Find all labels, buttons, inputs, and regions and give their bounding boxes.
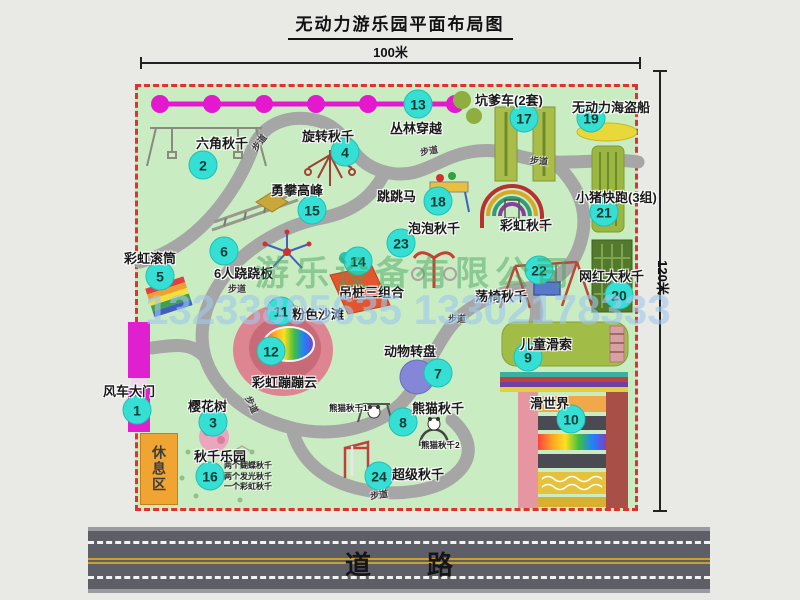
attraction-label-4: 旋转秋千 xyxy=(302,126,354,145)
attraction-label-9: 儿童滑索 xyxy=(520,334,572,353)
marker-16: 16 xyxy=(196,462,225,491)
attraction-label-11: 粉色沙滩 xyxy=(292,304,344,323)
attraction-label-7: 动物转盘 xyxy=(384,341,436,360)
page-title-wrap: 无动力游乐园平面布局图 xyxy=(0,10,800,40)
extra-label-0: 彩虹秋千 xyxy=(500,215,552,234)
attraction-label-2: 六角秋千 xyxy=(196,133,248,152)
marker-6: 6 xyxy=(210,237,239,266)
attraction-label-15: 勇攀高峰 xyxy=(271,180,323,199)
page-title: 无动力游乐园平面布局图 xyxy=(288,10,513,40)
attraction-label-8: 熊猫秋千 xyxy=(412,398,464,417)
attraction-label-19: 无动力海盗船 xyxy=(572,97,650,116)
swing-detail-line: 两个蝴蝶秋千 xyxy=(224,461,272,472)
tick-left xyxy=(140,57,142,69)
rest-area: 休息区 xyxy=(140,433,178,505)
attraction-label-22: 荡椅秋千 xyxy=(475,286,527,305)
attraction-label-20: 网红大秋千 xyxy=(579,266,644,285)
marker-12: 12 xyxy=(257,337,286,366)
road-label: 道路 xyxy=(88,545,710,582)
marker-18: 18 xyxy=(424,187,453,216)
attraction-label-13: 丛林穿越 xyxy=(390,118,442,137)
tick-right xyxy=(639,57,641,69)
marker-2: 2 xyxy=(189,151,218,180)
attraction-label-5: 彩虹滚筒 xyxy=(124,248,176,267)
attraction-label-21: 小猪快跑(3组) xyxy=(576,187,657,206)
marker-7: 7 xyxy=(424,359,453,388)
dimension-width-line xyxy=(140,62,641,64)
marker-15: 15 xyxy=(298,196,327,225)
dimension-width-label: 100米 xyxy=(140,42,641,61)
marker-14: 14 xyxy=(344,247,373,276)
attraction-label-24: 超级秋千 xyxy=(392,464,444,483)
extra-label-1: 熊猫秋千1 xyxy=(329,402,368,414)
walkway-label-3: 步道 xyxy=(228,282,246,295)
road: 道路 xyxy=(88,527,710,593)
swing-detail-line: 两个发光秋千 xyxy=(224,472,272,483)
extra-label-2: 熊猫秋千2 xyxy=(421,439,460,451)
swing-park-details: 两个蝴蝶秋千两个发光秋千一个彩虹秋千 xyxy=(224,461,272,493)
attraction-label-14: 吊桩三组合 xyxy=(339,282,404,301)
road-lane-line-top xyxy=(88,541,710,544)
marker-22: 22 xyxy=(525,256,554,285)
dimension-height-label: 120米 xyxy=(654,260,673,295)
walkway-label-4: 步道 xyxy=(448,312,466,325)
tick-top xyxy=(653,70,667,72)
attraction-label-23: 泡泡秋千 xyxy=(408,218,460,237)
marker-13: 13 xyxy=(404,90,433,119)
attraction-label-18: 跳跳马 xyxy=(377,186,416,205)
rest-area-label: 休息区 xyxy=(149,445,169,493)
swing-detail-line: 一个彩虹秋千 xyxy=(224,482,272,493)
tick-bottom xyxy=(653,510,667,512)
marker-24: 24 xyxy=(365,462,394,491)
attraction-label-12: 彩虹蹦蹦云 xyxy=(252,372,317,391)
walkway-label-2: 步道 xyxy=(529,153,548,168)
attraction-label-6: 6人跷跷板 xyxy=(214,263,273,282)
attraction-label-17: 坑爹车(2套) xyxy=(475,90,543,109)
attraction-label-10: 滑世界 xyxy=(530,393,569,412)
walkway-label-6: 步道 xyxy=(369,487,389,502)
attraction-label-1: 风车大门 xyxy=(103,381,155,400)
attraction-label-3: 樱花树 xyxy=(188,396,227,415)
